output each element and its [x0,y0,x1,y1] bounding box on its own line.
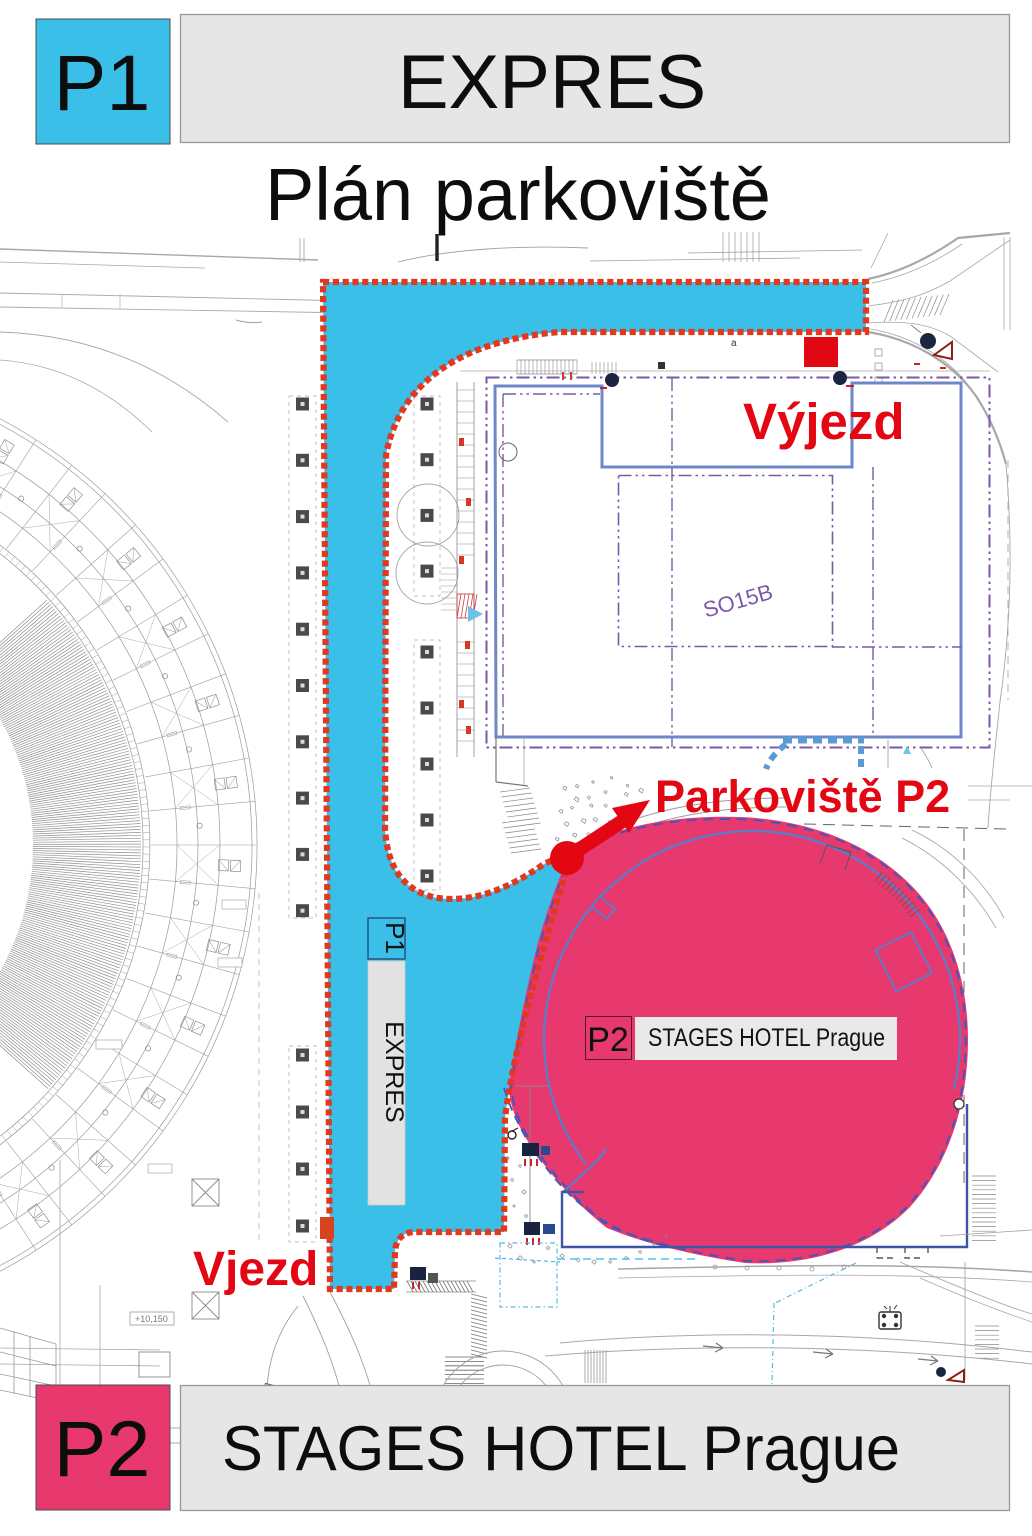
svg-text:P2: P2 [587,1021,629,1059]
svg-text:Výjezd: Výjezd [743,393,905,450]
svg-text:a: a [731,338,737,349]
svg-text:EXPRES: EXPRES [380,1021,408,1122]
svg-text:EXPRES: EXPRES [398,40,706,125]
svg-text:P1: P1 [54,38,151,127]
svg-text:P2: P2 [54,1404,151,1493]
svg-text:STAGES HOTEL Prague: STAGES HOTEL Prague [222,1414,900,1484]
svg-text:P1: P1 [380,922,410,954]
svg-text:Vjezd: Vjezd [193,1243,318,1296]
svg-text:Parkoviště P2: Parkoviště P2 [655,771,950,822]
svg-text:Plán parkoviště: Plán parkoviště [265,153,771,236]
svg-text:+10,150: +10,150 [135,1314,168,1324]
svg-text:STAGES HOTEL Prague: STAGES HOTEL Prague [648,1024,885,1052]
